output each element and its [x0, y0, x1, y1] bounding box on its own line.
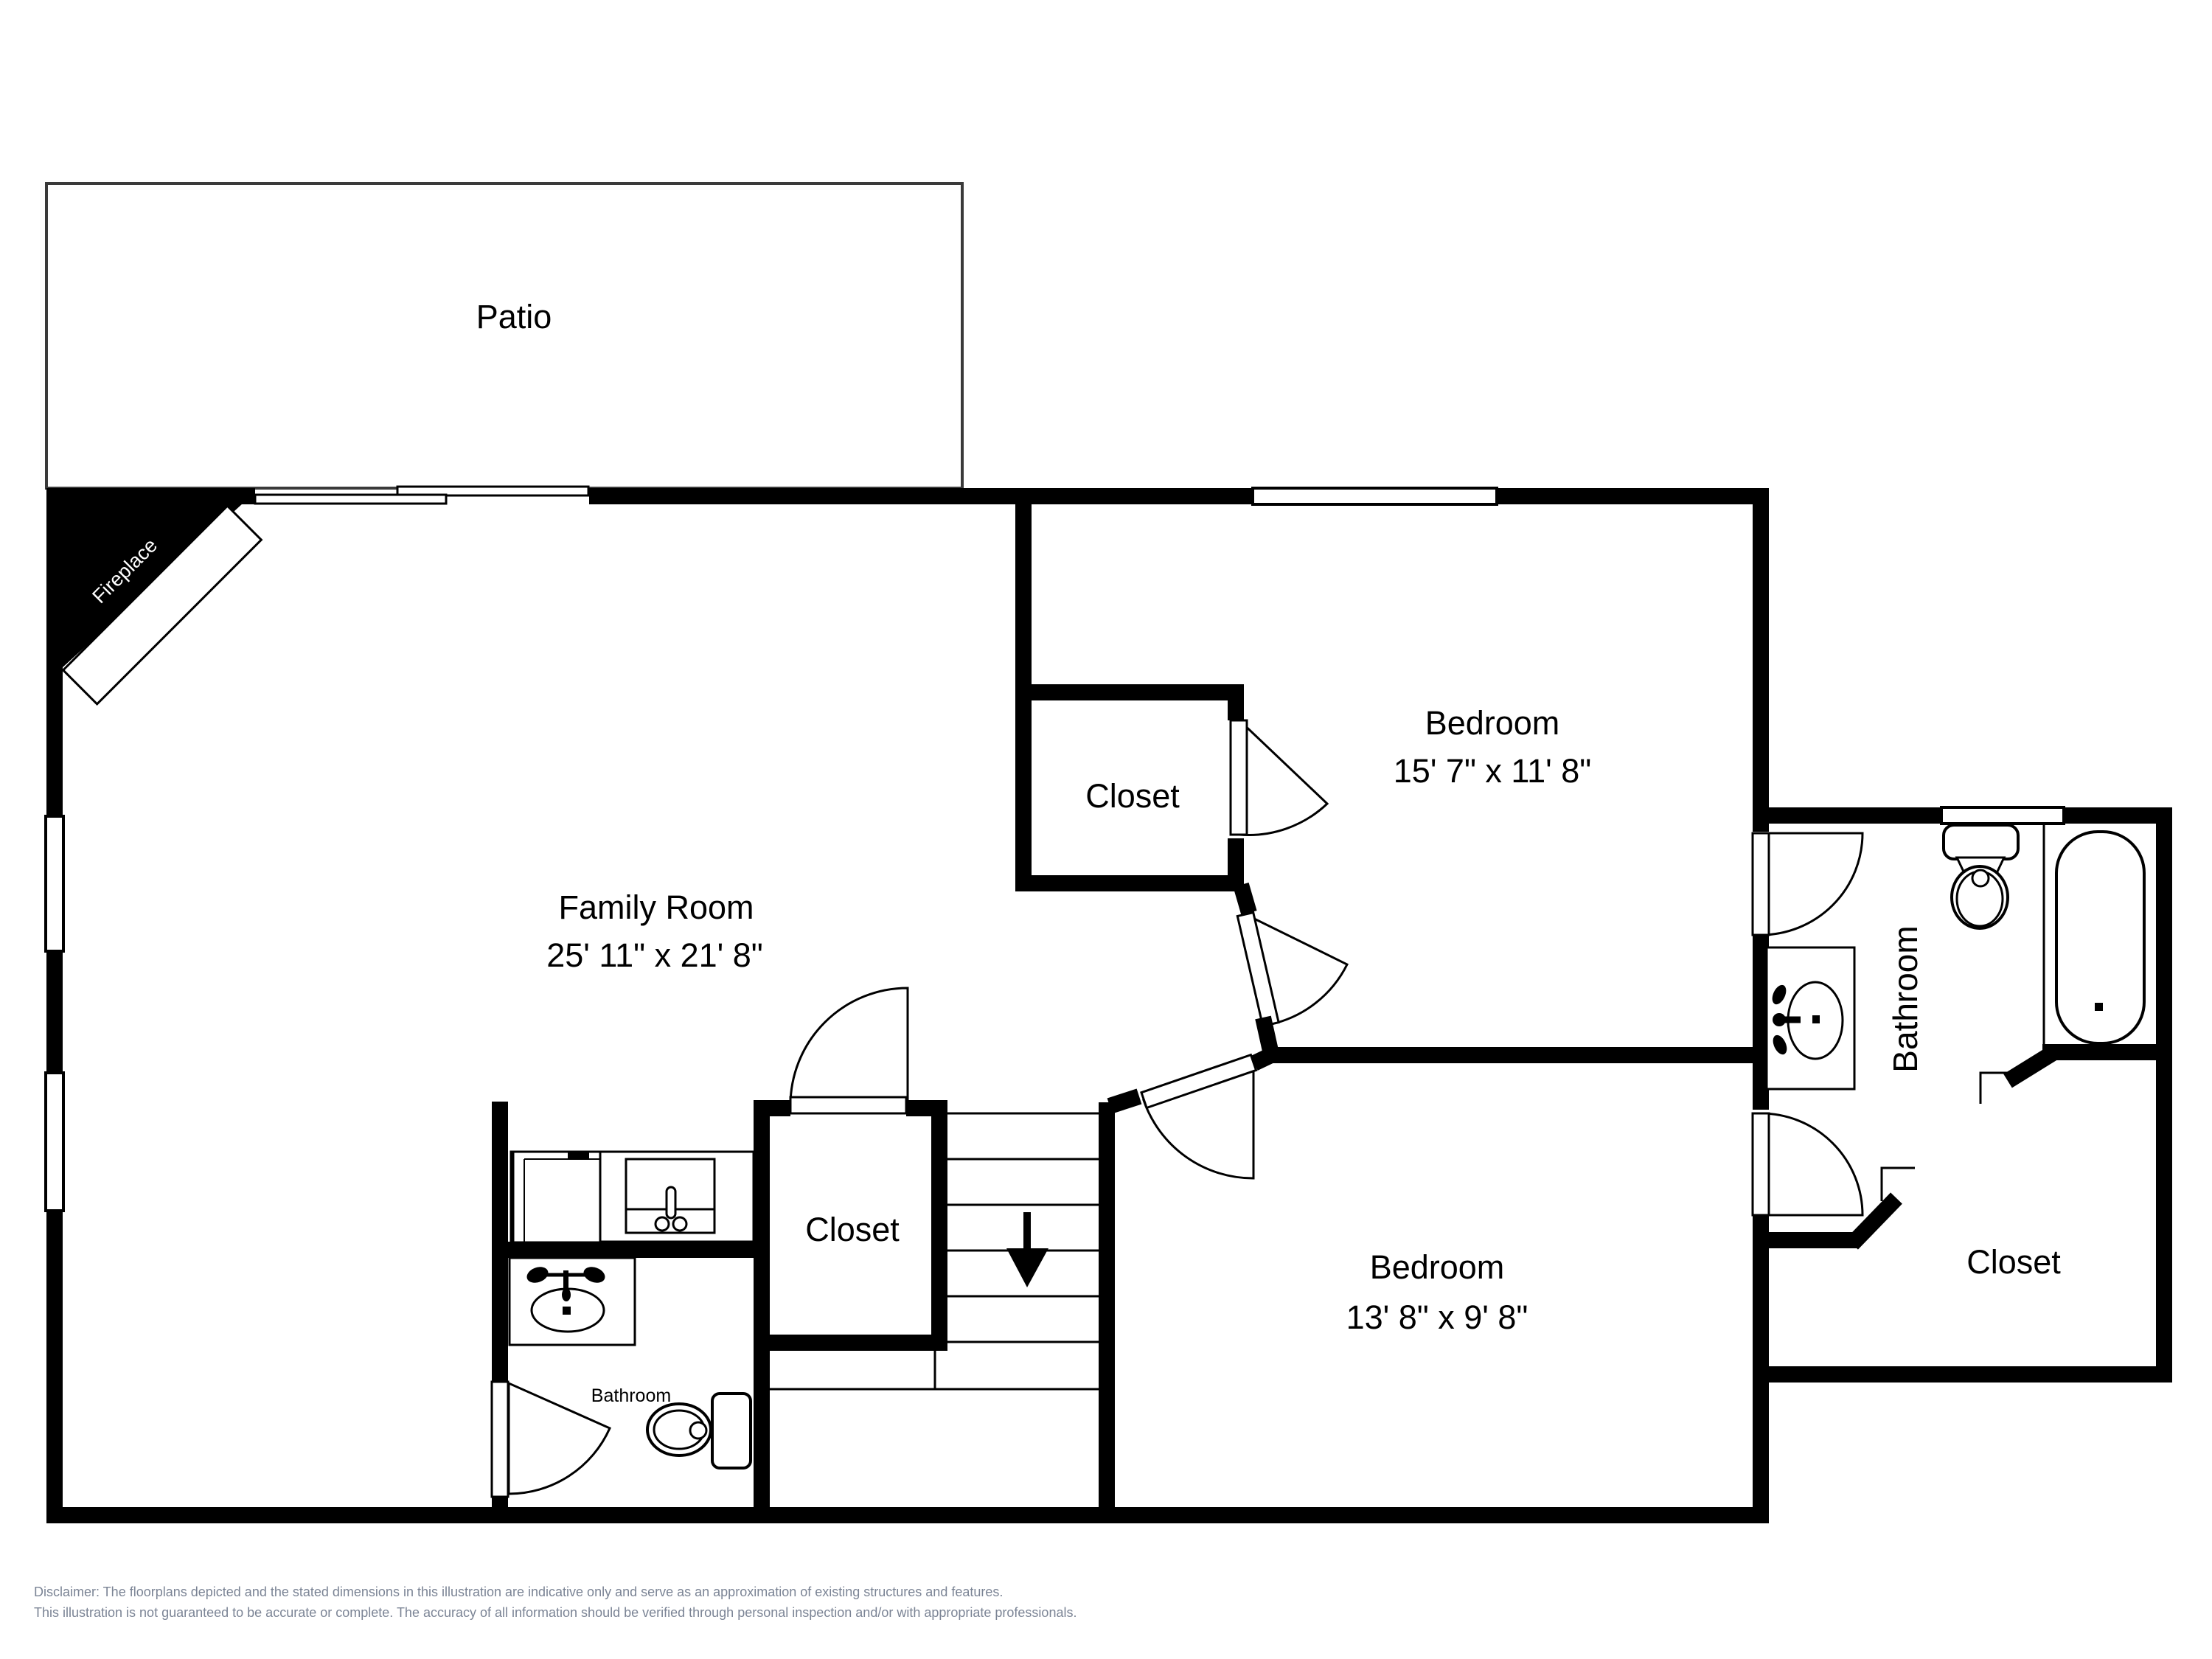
svg-text:This illustration is not guara: This illustration is not guaranteed to b…: [34, 1605, 1077, 1620]
svg-text:Bathroom: Bathroom: [1886, 925, 1924, 1072]
svg-text:15' 7" x 11' 8": 15' 7" x 11' 8": [1394, 752, 1591, 790]
svg-text:Closet: Closet: [805, 1211, 900, 1248]
svg-text:Disclaimer: The floorplans dep: Disclaimer: The floorplans depicted and …: [34, 1585, 1003, 1599]
svg-text:Bathroom: Bathroom: [591, 1385, 671, 1406]
svg-text:Closet: Closet: [1966, 1243, 2061, 1281]
svg-text:Patio: Patio: [476, 298, 552, 335]
svg-text:Bedroom: Bedroom: [1370, 1248, 1505, 1286]
svg-text:Bedroom: Bedroom: [1425, 704, 1560, 742]
svg-text:13' 8" x 9' 8": 13' 8" x 9' 8": [1346, 1298, 1528, 1336]
svg-text:Family Room: Family Room: [558, 888, 754, 926]
svg-text:Closet: Closet: [1085, 777, 1180, 815]
svg-text:25' 11" x 21' 8": 25' 11" x 21' 8": [546, 936, 763, 974]
